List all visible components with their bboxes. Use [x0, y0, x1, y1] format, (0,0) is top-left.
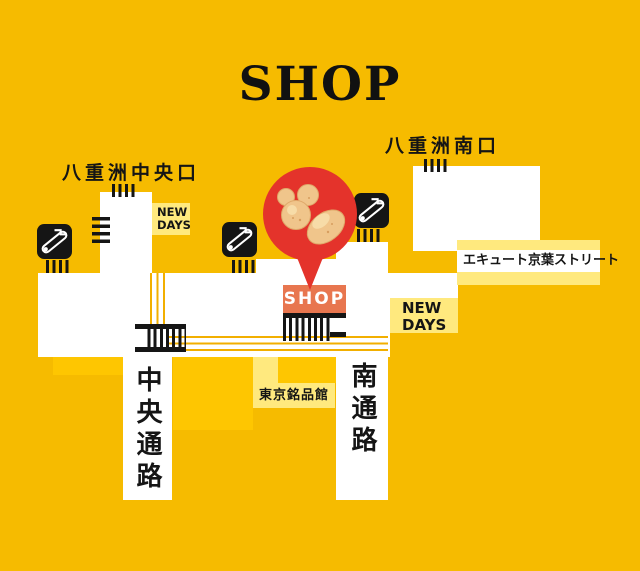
new-days-large: NEW DAYS — [390, 298, 458, 333]
stairs-icon-shop — [283, 313, 346, 341]
escalator-icon-west — [37, 224, 72, 259]
central-passage-label: 中央通路 — [134, 366, 160, 494]
ticket-gate-icon-west — [46, 260, 69, 273]
stairs-icon-mid-teeth — [135, 329, 186, 347]
escalator-icon-mid — [222, 222, 257, 257]
ticket-gate-icon-south — [424, 159, 447, 172]
route-line-horizontal — [167, 335, 388, 351]
new-days-small: NEW DAYS — [152, 203, 190, 235]
ecute-band-inner: エキュート京葉ストリート — [457, 250, 600, 272]
meihinkan-tab — [253, 357, 278, 383]
new-days-large-line1: NEW — [402, 300, 458, 317]
corridor-main-east — [390, 273, 458, 298]
yaesu-central-exit-label: 八重洲中央口 — [62, 158, 200, 185]
new-days-small-line2: DAYS — [157, 219, 190, 232]
map-pin-icon — [258, 162, 362, 296]
ticket-gate-icon-central — [112, 184, 135, 197]
route-line-vertical — [150, 273, 165, 324]
page-title: SHOP — [0, 57, 640, 112]
station-map: SHOP エキュート京葉ストリート 東京銘品館 NEW DAYS NEW DAY… — [0, 0, 640, 571]
corridor-yaesu-south — [413, 166, 540, 251]
gold-block-mid — [173, 357, 253, 430]
yaesu-south-exit-label: 八重洲南口 — [385, 131, 500, 158]
stairs-shop-teeth — [283, 318, 332, 341]
stairs-hatch-icon — [92, 216, 110, 243]
gold-block-east — [278, 357, 336, 383]
gold-block-west — [53, 357, 123, 375]
new-days-large-line2: DAYS — [402, 317, 458, 334]
ecute-keiyo-street-label: エキュート京葉ストリート — [457, 250, 600, 272]
stairs-shop-step — [330, 332, 346, 337]
stairs-icon-mid — [135, 324, 186, 352]
tokyo-meihinkan-label: 東京銘品館 — [253, 383, 335, 408]
south-passage-label: 南通路 — [349, 362, 375, 458]
ticket-gate-icon-mid — [232, 260, 255, 273]
